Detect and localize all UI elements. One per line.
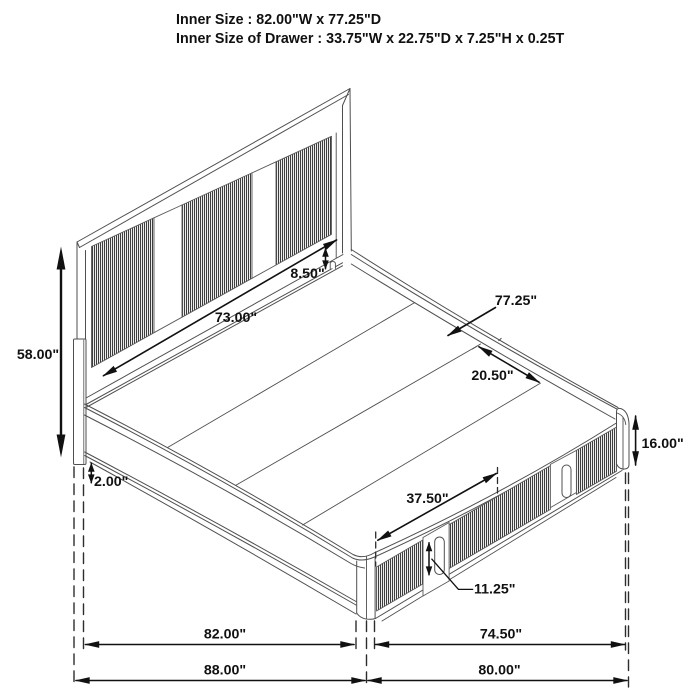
svg-text:80.00": 80.00" xyxy=(478,663,520,679)
svg-text:77.25": 77.25" xyxy=(495,293,537,309)
svg-text:82.00": 82.00" xyxy=(204,627,246,643)
svg-text:74.50": 74.50" xyxy=(480,627,522,643)
svg-text:Inner Size of Drawer : 33.75"W: Inner Size of Drawer : 33.75"W x 22.75"D… xyxy=(176,31,565,47)
svg-text:11.25": 11.25" xyxy=(474,582,515,598)
svg-text:73.00": 73.00" xyxy=(215,310,257,326)
svg-text:2.00": 2.00" xyxy=(94,474,128,490)
svg-text:88.00": 88.00" xyxy=(204,663,246,679)
svg-text:Inner Size : 82.00"W x 77.25"D: Inner Size : 82.00"W x 77.25"D xyxy=(176,12,381,28)
svg-text:8.50": 8.50" xyxy=(290,266,324,282)
svg-text:16.00": 16.00" xyxy=(642,436,684,452)
svg-text:20.50": 20.50" xyxy=(471,368,513,384)
svg-text:58.00": 58.00" xyxy=(17,347,59,363)
svg-text:37.50": 37.50" xyxy=(406,491,448,507)
